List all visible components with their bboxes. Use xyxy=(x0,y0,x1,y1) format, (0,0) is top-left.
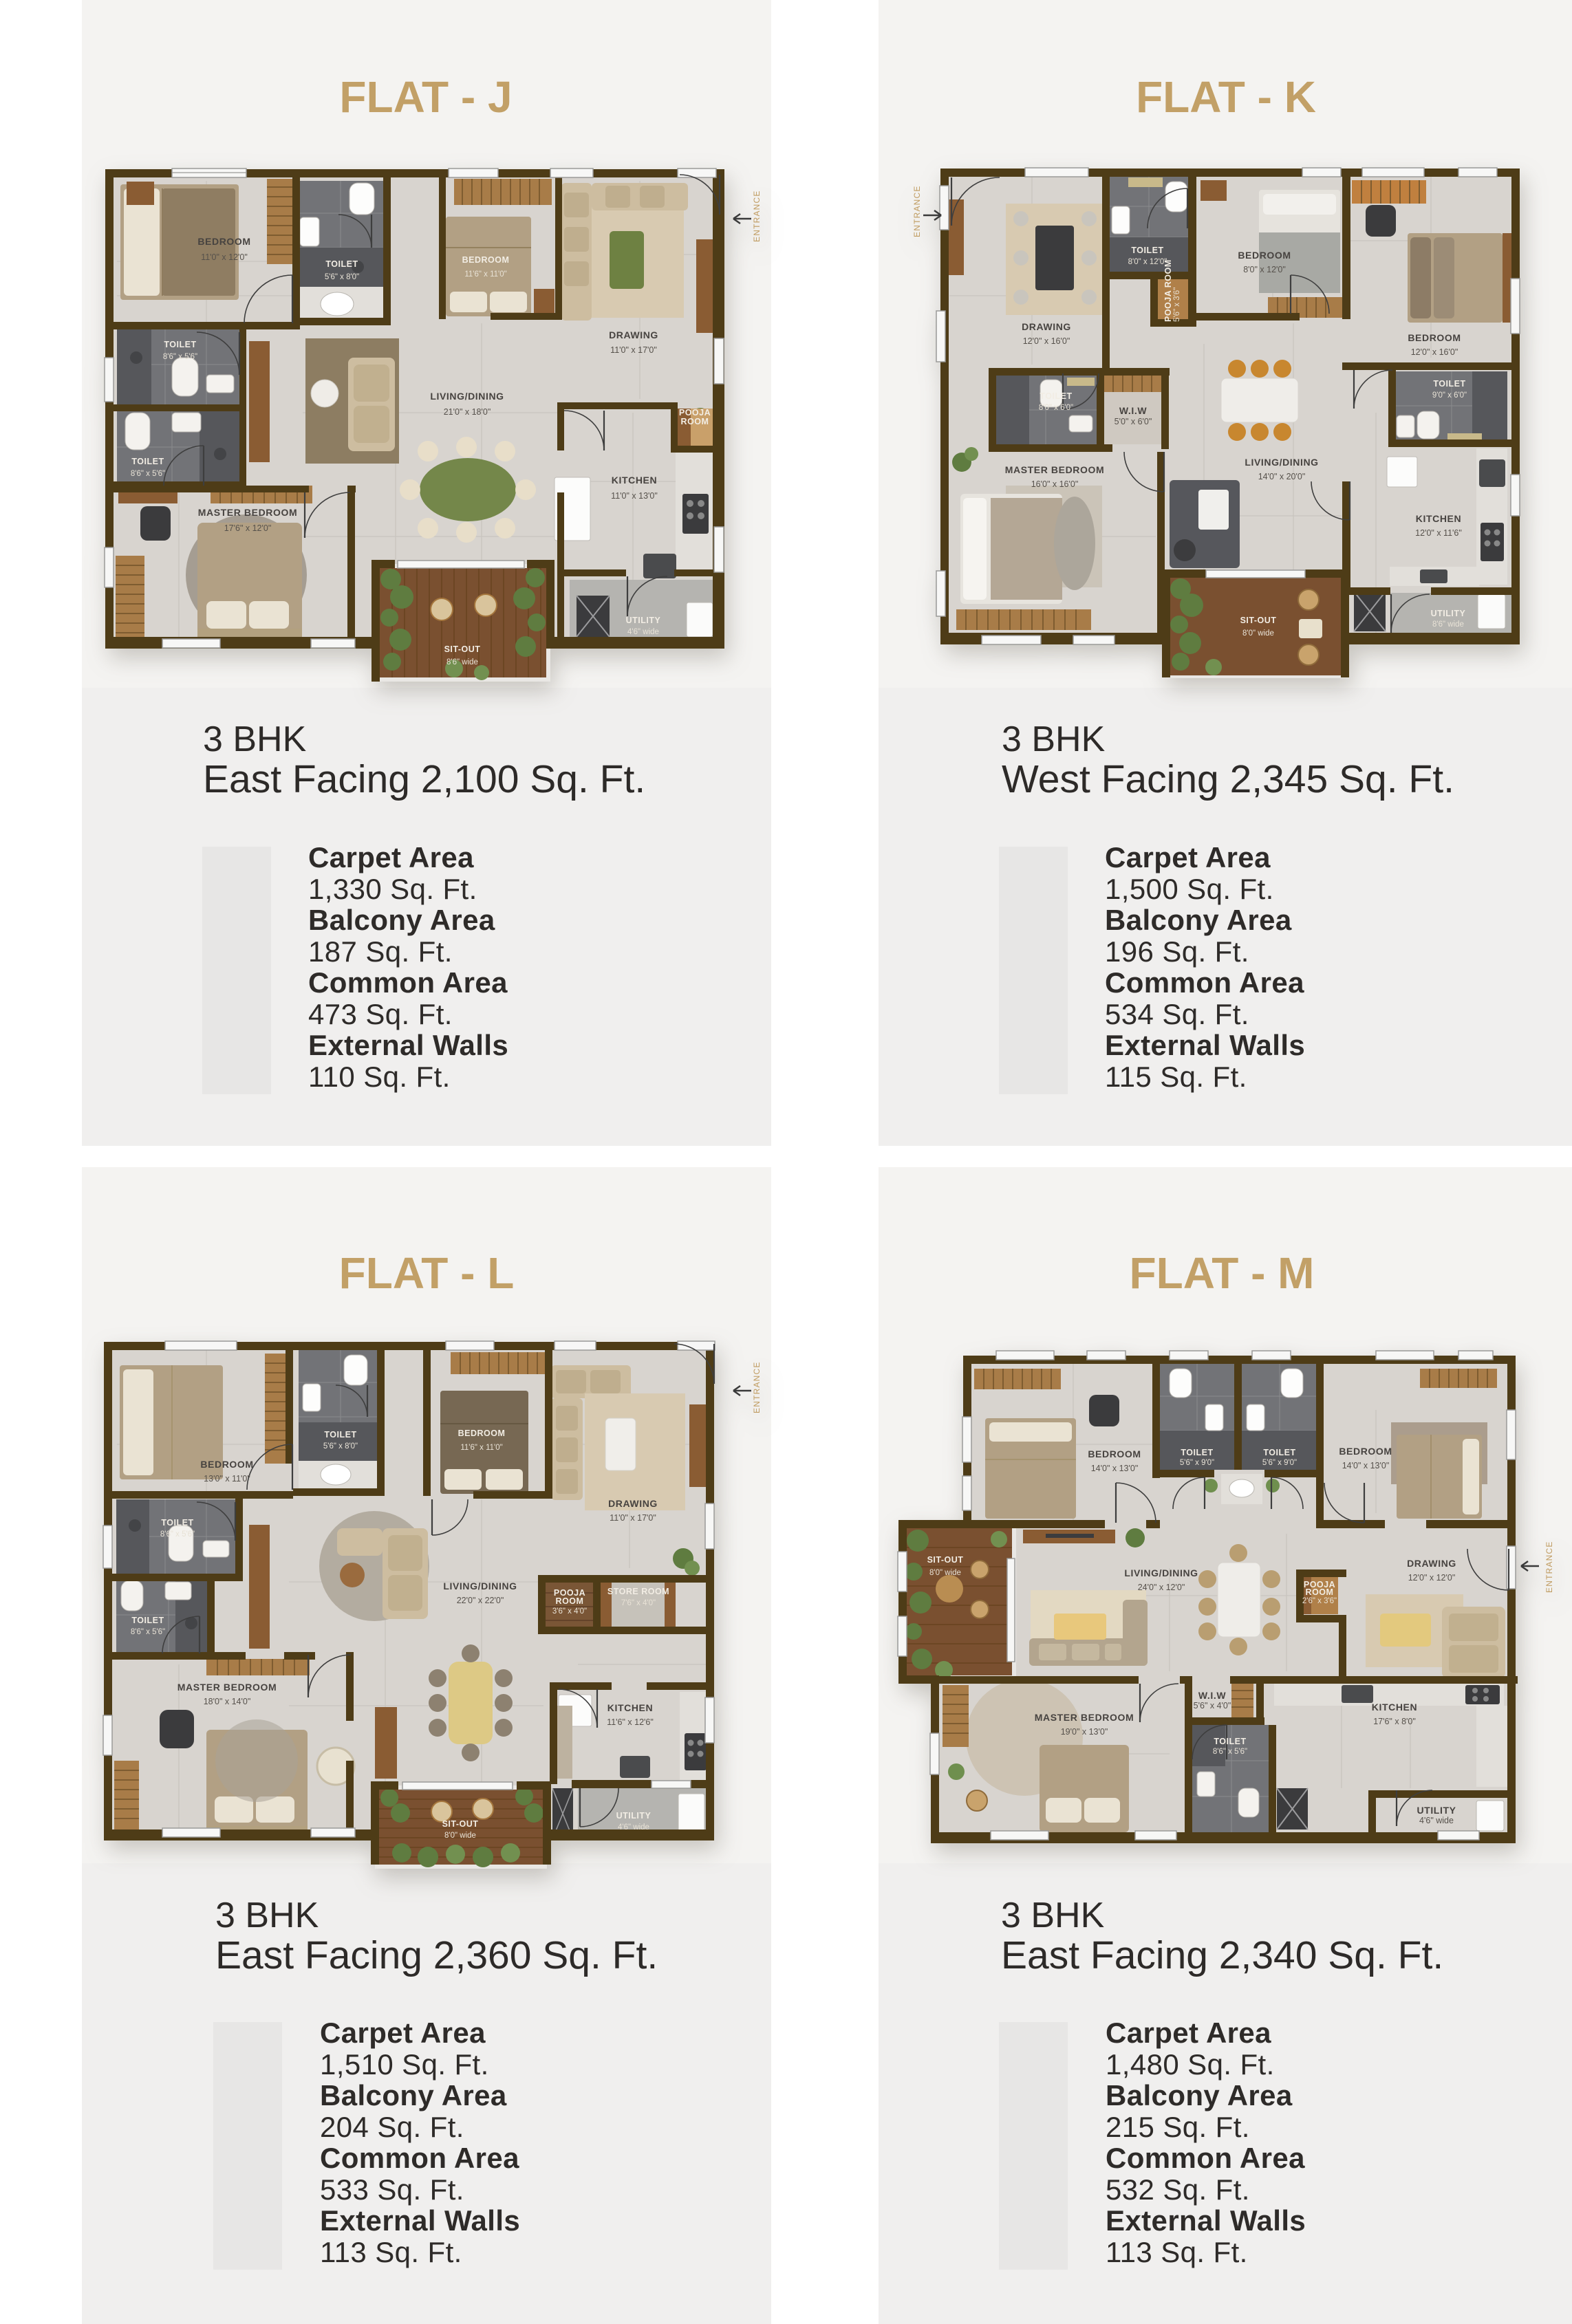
svg-text:9'0" x 6'0": 9'0" x 6'0" xyxy=(1432,391,1467,400)
svg-text:3'6" x 4'0": 3'6" x 4'0" xyxy=(552,1607,587,1616)
svg-text:TOILET: TOILET xyxy=(324,1430,356,1440)
svg-text:7'6" x 4'0": 7'6" x 4'0" xyxy=(621,1599,656,1607)
svg-text:TOILET: TOILET xyxy=(1263,1448,1295,1457)
svg-text:5'6" x 8'0": 5'6" x 8'0" xyxy=(323,1442,358,1451)
svg-text:11'6" x 11'0": 11'6" x 11'0" xyxy=(460,1444,502,1452)
svg-text:W.I.W: W.I.W xyxy=(1119,405,1148,416)
svg-text:8'6" x 5'6": 8'6" x 5'6" xyxy=(131,470,165,478)
svg-text:TOILET: TOILET xyxy=(1131,246,1163,255)
svg-text:5'0" x 6'0": 5'0" x 6'0" xyxy=(1115,417,1152,426)
svg-text:LIVING/DINING: LIVING/DINING xyxy=(443,1581,517,1592)
svg-text:12'0" x 16'0": 12'0" x 16'0" xyxy=(1411,347,1458,357)
svg-text:8'0" wide: 8'0" wide xyxy=(1242,629,1274,638)
svg-text:ROOM: ROOM xyxy=(1306,1587,1334,1597)
svg-text:17'6" x 12'0": 17'6" x 12'0" xyxy=(224,523,272,533)
svg-text:12'0" x 12'0": 12'0" x 12'0" xyxy=(1408,1573,1456,1583)
svg-text:5'6" x 9'0": 5'6" x 9'0" xyxy=(1262,1459,1297,1467)
svg-text:POOJA: POOJA xyxy=(679,408,711,417)
svg-text:11'6" x 11'0": 11'6" x 11'0" xyxy=(464,270,506,279)
svg-text:8'6" x 5'6": 8'6" x 5'6" xyxy=(1213,1748,1247,1756)
svg-text:TOILET: TOILET xyxy=(161,1518,193,1528)
svg-text:11'0" x 13'0": 11'0" x 13'0" xyxy=(611,491,658,501)
svg-text:TOILET: TOILET xyxy=(164,340,196,349)
svg-text:DRAWING: DRAWING xyxy=(608,1498,658,1509)
svg-text:22'0" x 22'0": 22'0" x 22'0" xyxy=(457,1596,504,1605)
svg-text:ENTRANCE: ENTRANCE xyxy=(752,190,762,242)
svg-text:ENTRANCE: ENTRANCE xyxy=(912,185,922,237)
svg-text:TOILET: TOILET xyxy=(1433,379,1465,389)
svg-text:TOILET: TOILET xyxy=(1040,391,1072,401)
svg-text:14'0" x 13'0": 14'0" x 13'0" xyxy=(1342,1461,1390,1470)
svg-text:8'6" wide: 8'6" wide xyxy=(1432,620,1464,629)
svg-text:BEDROOM: BEDROOM xyxy=(1088,1448,1141,1459)
svg-text:8'6" x 5'6": 8'6" x 5'6" xyxy=(160,1530,195,1539)
svg-text:8'6" wide: 8'6" wide xyxy=(446,658,478,666)
svg-text:BEDROOM: BEDROOM xyxy=(1238,250,1291,261)
svg-text:24'0" x 12'0": 24'0" x 12'0" xyxy=(1138,1583,1185,1592)
svg-text:8'0" x 12'0": 8'0" x 12'0" xyxy=(1243,265,1286,274)
svg-text:ROOM: ROOM xyxy=(681,417,709,426)
svg-text:4'6" wide: 4'6" wide xyxy=(618,1823,649,1832)
svg-text:ROOM: ROOM xyxy=(556,1596,584,1606)
svg-text:UTILITY: UTILITY xyxy=(616,1811,652,1821)
svg-text:UTILITY: UTILITY xyxy=(1431,609,1466,618)
svg-text:LIVING/DINING: LIVING/DINING xyxy=(430,391,504,402)
svg-text:STORE ROOM: STORE ROOM xyxy=(607,1587,669,1596)
svg-text:8'0" x 12'0": 8'0" x 12'0" xyxy=(1128,258,1167,266)
svg-text:MASTER BEDROOM: MASTER BEDROOM xyxy=(1005,464,1105,475)
svg-text:KITCHEN: KITCHEN xyxy=(1372,1702,1417,1713)
svg-text:8'6" x 5'6": 8'6" x 5'6" xyxy=(131,1628,165,1636)
svg-text:5'6" x 3'6": 5'6" x 3'6" xyxy=(1173,287,1181,322)
svg-text:KITCHEN: KITCHEN xyxy=(1416,513,1461,524)
svg-text:TOILET: TOILET xyxy=(1214,1737,1246,1746)
svg-text:TOILET: TOILET xyxy=(131,457,164,466)
svg-text:19'0" x 13'0": 19'0" x 13'0" xyxy=(1061,1727,1108,1737)
svg-text:2'6" x 3'6": 2'6" x 3'6" xyxy=(1302,1597,1337,1605)
svg-text:11'6" x 12'6": 11'6" x 12'6" xyxy=(607,1717,654,1727)
svg-text:8'6" x 5'6": 8'6" x 5'6" xyxy=(163,353,197,361)
svg-text:18'0" x 14'0": 18'0" x 14'0" xyxy=(204,1697,251,1706)
svg-text:BEDROOM: BEDROOM xyxy=(458,1429,506,1438)
svg-text:DRAWING: DRAWING xyxy=(1407,1558,1456,1569)
svg-text:8'0" x 6'0": 8'0" x 6'0" xyxy=(1039,404,1073,412)
svg-text:MASTER BEDROOM: MASTER BEDROOM xyxy=(198,507,298,518)
svg-text:SIT-OUT: SIT-OUT xyxy=(442,1819,479,1829)
svg-text:KITCHEN: KITCHEN xyxy=(607,1702,653,1713)
svg-text:5'6" x 8'0": 5'6" x 8'0" xyxy=(325,273,359,281)
svg-text:4'6" wide: 4'6" wide xyxy=(627,628,659,636)
svg-text:BEDROOM: BEDROOM xyxy=(1408,332,1461,343)
svg-text:ENTRANCE: ENTRANCE xyxy=(752,1361,760,1413)
svg-text:LIVING/DINING: LIVING/DINING xyxy=(1124,1567,1198,1578)
svg-text:LIVING/DINING: LIVING/DINING xyxy=(1245,457,1318,468)
svg-text:MASTER BEDROOM: MASTER BEDROOM xyxy=(1035,1712,1134,1723)
svg-text:UTILITY: UTILITY xyxy=(626,616,661,625)
svg-text:14'0" x 13'0": 14'0" x 13'0" xyxy=(1091,1464,1139,1473)
svg-text:11'0" x 17'0": 11'0" x 17'0" xyxy=(610,1513,656,1523)
svg-text:KITCHEN: KITCHEN xyxy=(612,475,657,486)
svg-text:MASTER BEDROOM: MASTER BEDROOM xyxy=(177,1682,277,1693)
svg-text:ENTRANCE: ENTRANCE xyxy=(1544,1541,1554,1593)
svg-text:BEDROOM: BEDROOM xyxy=(1339,1446,1392,1457)
svg-text:13'0" x 11'0": 13'0" x 11'0" xyxy=(204,1474,250,1484)
svg-text:12'0" x 11'6": 12'0" x 11'6" xyxy=(1415,528,1462,538)
svg-text:5'6" x 9'0": 5'6" x 9'0" xyxy=(1180,1459,1214,1467)
svg-text:SIT-OUT: SIT-OUT xyxy=(927,1555,964,1565)
svg-text:TOILET: TOILET xyxy=(131,1616,164,1625)
svg-text:BEDROOM: BEDROOM xyxy=(200,1459,253,1470)
svg-text:16'0" x 16'0": 16'0" x 16'0" xyxy=(1031,479,1079,489)
svg-text:4'6" wide: 4'6" wide xyxy=(1419,1816,1454,1825)
svg-text:BEDROOM: BEDROOM xyxy=(197,236,250,247)
svg-text:DRAWING: DRAWING xyxy=(1022,321,1071,332)
svg-text:POOJA ROOM: POOJA ROOM xyxy=(1163,259,1173,322)
svg-text:11'0" x 12'0": 11'0" x 12'0" xyxy=(201,252,248,262)
svg-text:8'0" wide: 8'0" wide xyxy=(444,1832,476,1840)
svg-text:TOILET: TOILET xyxy=(325,259,358,269)
svg-text:W.I.W: W.I.W xyxy=(1198,1690,1227,1701)
svg-text:SIT-OUT: SIT-OUT xyxy=(444,644,481,654)
svg-text:12'0" x 16'0": 12'0" x 16'0" xyxy=(1023,336,1070,346)
svg-text:TOILET: TOILET xyxy=(1181,1448,1213,1457)
svg-text:8'0" wide: 8'0" wide xyxy=(929,1569,961,1577)
svg-text:17'6" x 8'0": 17'6" x 8'0" xyxy=(1373,1717,1416,1726)
svg-text:UTILITY: UTILITY xyxy=(1417,1805,1456,1816)
svg-text:21'0" x 18'0": 21'0" x 18'0" xyxy=(444,407,491,417)
svg-text:5'6" x 4'0": 5'6" x 4'0" xyxy=(1194,1701,1231,1711)
svg-text:BEDROOM: BEDROOM xyxy=(462,255,510,265)
svg-text:11'0" x 17'0": 11'0" x 17'0" xyxy=(610,345,657,355)
svg-text:14'0" x 20'0": 14'0" x 20'0" xyxy=(1258,472,1306,481)
svg-text:DRAWING: DRAWING xyxy=(609,329,658,340)
svg-text:SIT-OUT: SIT-OUT xyxy=(1240,616,1277,625)
